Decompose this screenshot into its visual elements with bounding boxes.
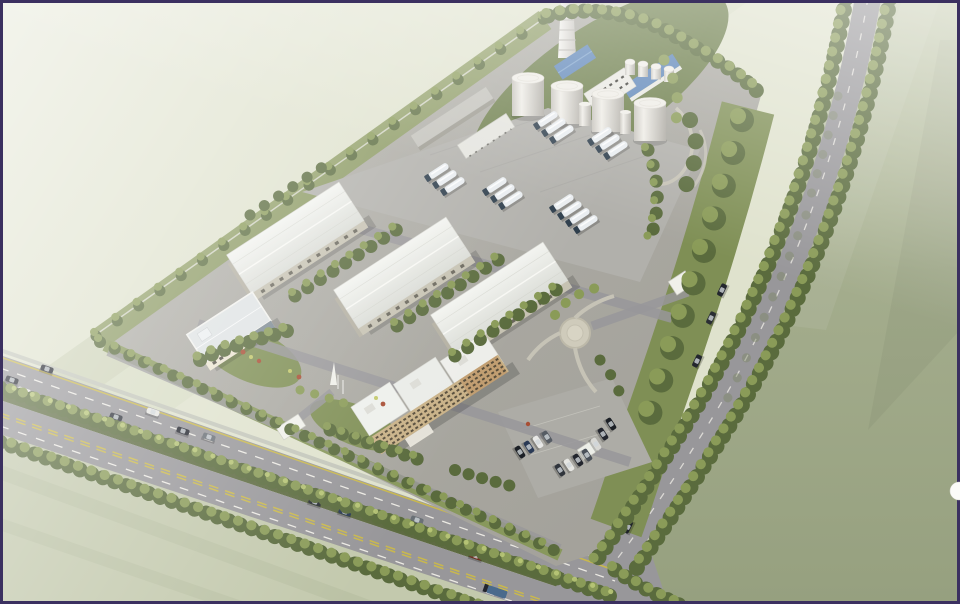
atmosphere	[0, 0, 960, 604]
haze-top-right	[0, 0, 960, 604]
rendering-canvas	[0, 0, 960, 604]
aerial-render-scene	[0, 0, 960, 604]
